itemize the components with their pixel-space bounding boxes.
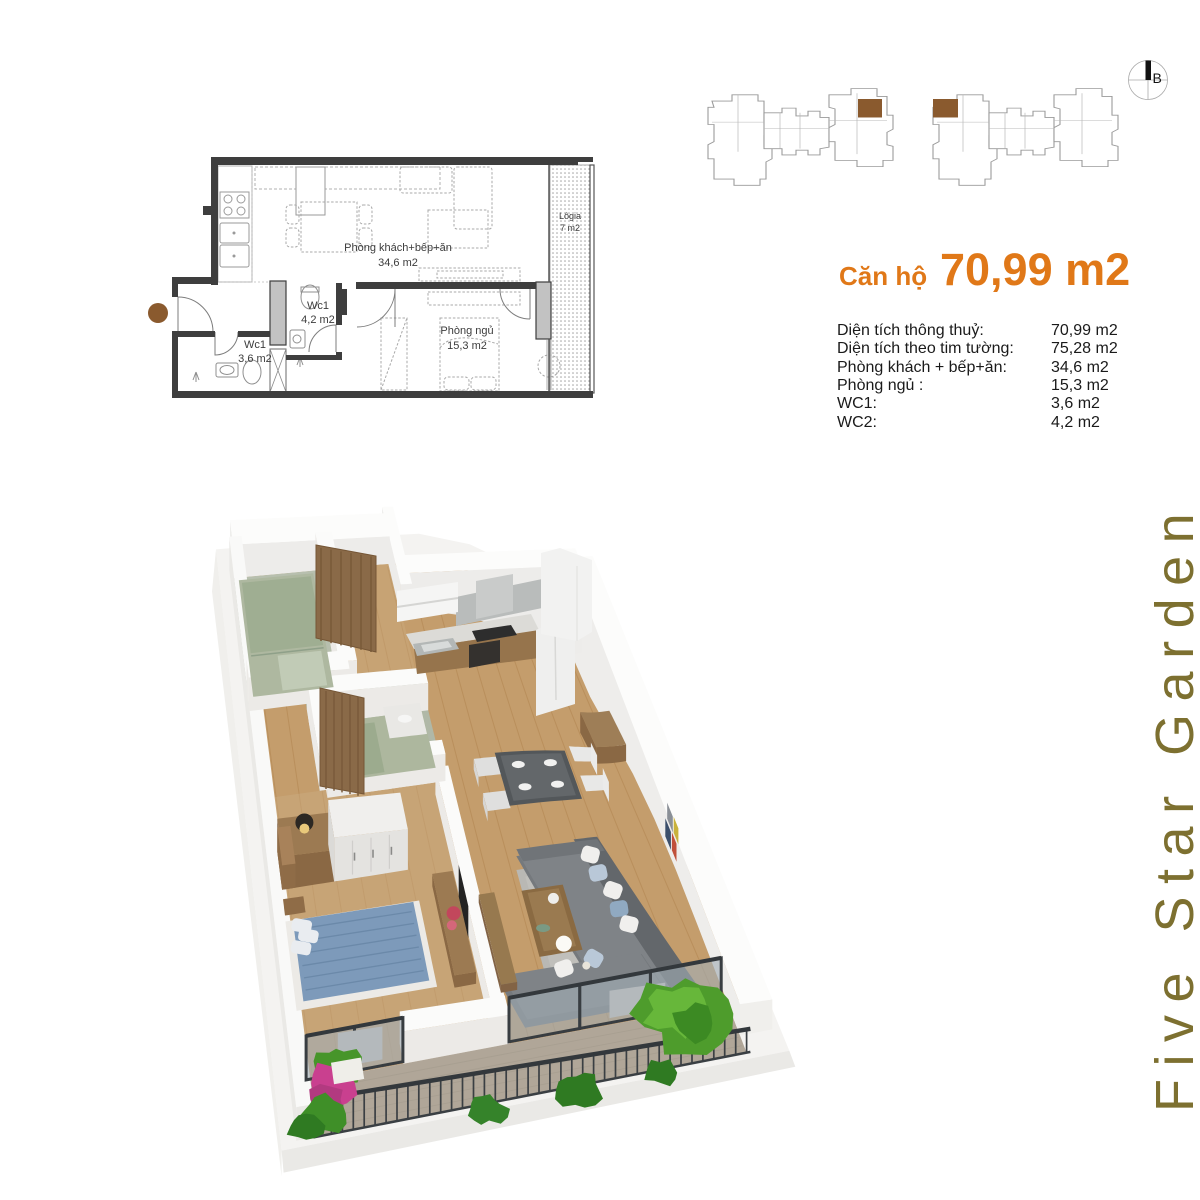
svg-text:Phòng ngủ :: Phòng ngủ :: [837, 377, 923, 394]
svg-text:Five Star Garden: Five Star Garden: [1145, 501, 1200, 1112]
svg-text:Căn hộ: Căn hộ: [839, 261, 927, 291]
svg-text:B: B: [1153, 70, 1162, 86]
svg-text:4,2 m2: 4,2 m2: [1051, 414, 1100, 431]
svg-text:3,6 m2: 3,6 m2: [238, 353, 272, 365]
svg-text:WC1:: WC1:: [837, 395, 877, 412]
svg-text:7 m2: 7 m2: [560, 223, 580, 233]
svg-text:Lôgia: Lôgia: [559, 211, 581, 221]
svg-text:75,28 m2: 75,28 m2: [1051, 340, 1118, 357]
svg-text:15,3 m2: 15,3 m2: [1051, 377, 1109, 394]
svg-text:70,99 m2: 70,99 m2: [940, 244, 1130, 295]
svg-text:Phòng khách+bếp+ăn: Phòng khách+bếp+ăn: [344, 242, 452, 254]
svg-text:34,6 m2: 34,6 m2: [378, 257, 418, 269]
svg-text:3,6 m2: 3,6 m2: [1051, 395, 1100, 412]
svg-text:Wc1: Wc1: [244, 339, 266, 351]
svg-text:70,99 m2: 70,99 m2: [1051, 322, 1118, 339]
svg-text:15,3 m2: 15,3 m2: [447, 340, 487, 352]
svg-text:34,6 m2: 34,6 m2: [1051, 359, 1109, 376]
svg-text:Diện tích theo tim tường:: Diện tích theo tim tường:: [837, 340, 1014, 357]
svg-text:Diện tích thông thuỷ:: Diện tích thông thuỷ:: [837, 322, 984, 339]
svg-text:4,2 m2: 4,2 m2: [301, 314, 335, 326]
svg-text:Phòng khách + bếp+ăn:: Phòng khách + bếp+ăn:: [837, 359, 1007, 376]
svg-text:WC2:: WC2:: [837, 414, 877, 431]
svg-text:Wc1: Wc1: [307, 300, 329, 312]
svg-text:Phòng ngủ: Phòng ngủ: [440, 325, 493, 337]
